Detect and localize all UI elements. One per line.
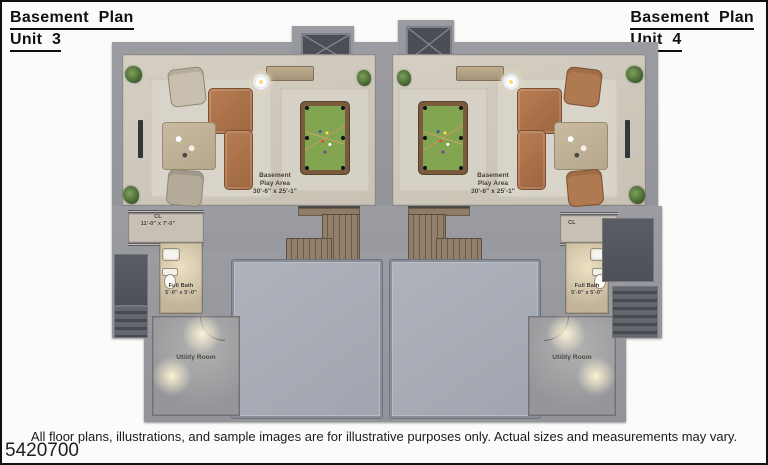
plant-icon	[357, 70, 371, 86]
unit3-slab-area	[232, 260, 382, 418]
unit4-play-area-line1: Basement	[460, 172, 526, 180]
plant-icon	[626, 66, 643, 83]
unit3-utility-room	[152, 316, 240, 416]
sink-icon	[162, 248, 180, 261]
unit4-closet-name: CL	[560, 220, 584, 227]
unit4-bath-dims: 5'-0" x 5'-0"	[563, 290, 611, 297]
unit3-bath-dims: 5'-0" x 5'-0"	[157, 290, 205, 297]
unit3-armchair-bottom	[165, 168, 204, 207]
unit3-closet-label: CL 11'-0" x 7'-0"	[126, 214, 190, 228]
unit4-bath-name: Full Bath	[563, 283, 611, 290]
unit3-play-area-dims: 30'-6" x 25'-1"	[242, 188, 308, 196]
unit3-bath-name: Full Bath	[157, 283, 205, 290]
unit3-console-table	[266, 66, 314, 81]
unit3-exterior-steps	[114, 306, 148, 338]
unit3-exterior-stairwell	[114, 254, 148, 306]
unit3-pool-table-felt	[305, 106, 345, 170]
floor-plan-image: Basement Plan Unit 3 Basement Plan Unit …	[0, 0, 768, 465]
disclaimer-text: All floor plans, illustrations, and samp…	[2, 429, 766, 444]
unit4-utility-room	[528, 316, 616, 416]
toilet-icon	[162, 268, 178, 276]
unit3-play-area-line1: Basement	[242, 172, 308, 180]
plant-icon	[125, 66, 142, 83]
unit4-pool-table	[419, 102, 467, 174]
unit4-console-table	[456, 66, 504, 81]
unit3-utility-label: Utility Room	[152, 354, 240, 362]
unit3-bath-label: Full Bath 5'-0" x 5'-0"	[157, 283, 205, 297]
unit3-pool-table	[301, 102, 349, 174]
listing-number: 5420700	[5, 440, 79, 462]
unit4-stairs-lower	[436, 238, 482, 262]
ceiling-light-icon	[251, 72, 271, 92]
unit4-closet-label: CL	[560, 220, 584, 227]
unit3-armchair-top	[167, 66, 207, 108]
unit4-play-area-dims: 30'-6" x 25'-1"	[460, 188, 526, 196]
unit4-pool-table-felt	[423, 106, 463, 170]
plant-icon	[123, 186, 139, 204]
unit4-armchair-top	[563, 66, 603, 108]
unit4-ottoman-table	[554, 122, 608, 170]
unit3-media-unit	[138, 120, 143, 158]
unit4-bath-label: Full Bath 5'-0" x 5'-0"	[563, 283, 611, 297]
unit3-stairs-lower	[286, 238, 332, 262]
unit3-ottoman-table	[162, 122, 216, 170]
unit4-play-area-label: Basement Play Area 30'-6" x 25'-1"	[460, 172, 526, 196]
unit3-closet-name: CL	[126, 214, 190, 221]
unit3-closet-dims: 11'-0" x 7'-0"	[126, 221, 190, 228]
unit4-media-unit	[625, 120, 630, 158]
unit4-utility-label: Utility Room	[528, 354, 616, 362]
unit4-armchair-bottom	[565, 168, 604, 207]
plant-icon	[629, 186, 645, 204]
unit4-exterior-steps	[612, 286, 658, 338]
plant-icon	[397, 70, 411, 86]
unit4-slab-area	[390, 260, 540, 418]
unit3-play-area-label: Basement Play Area 30'-6" x 25'-1"	[242, 172, 308, 196]
unit4-exterior-stairwell	[602, 218, 654, 282]
